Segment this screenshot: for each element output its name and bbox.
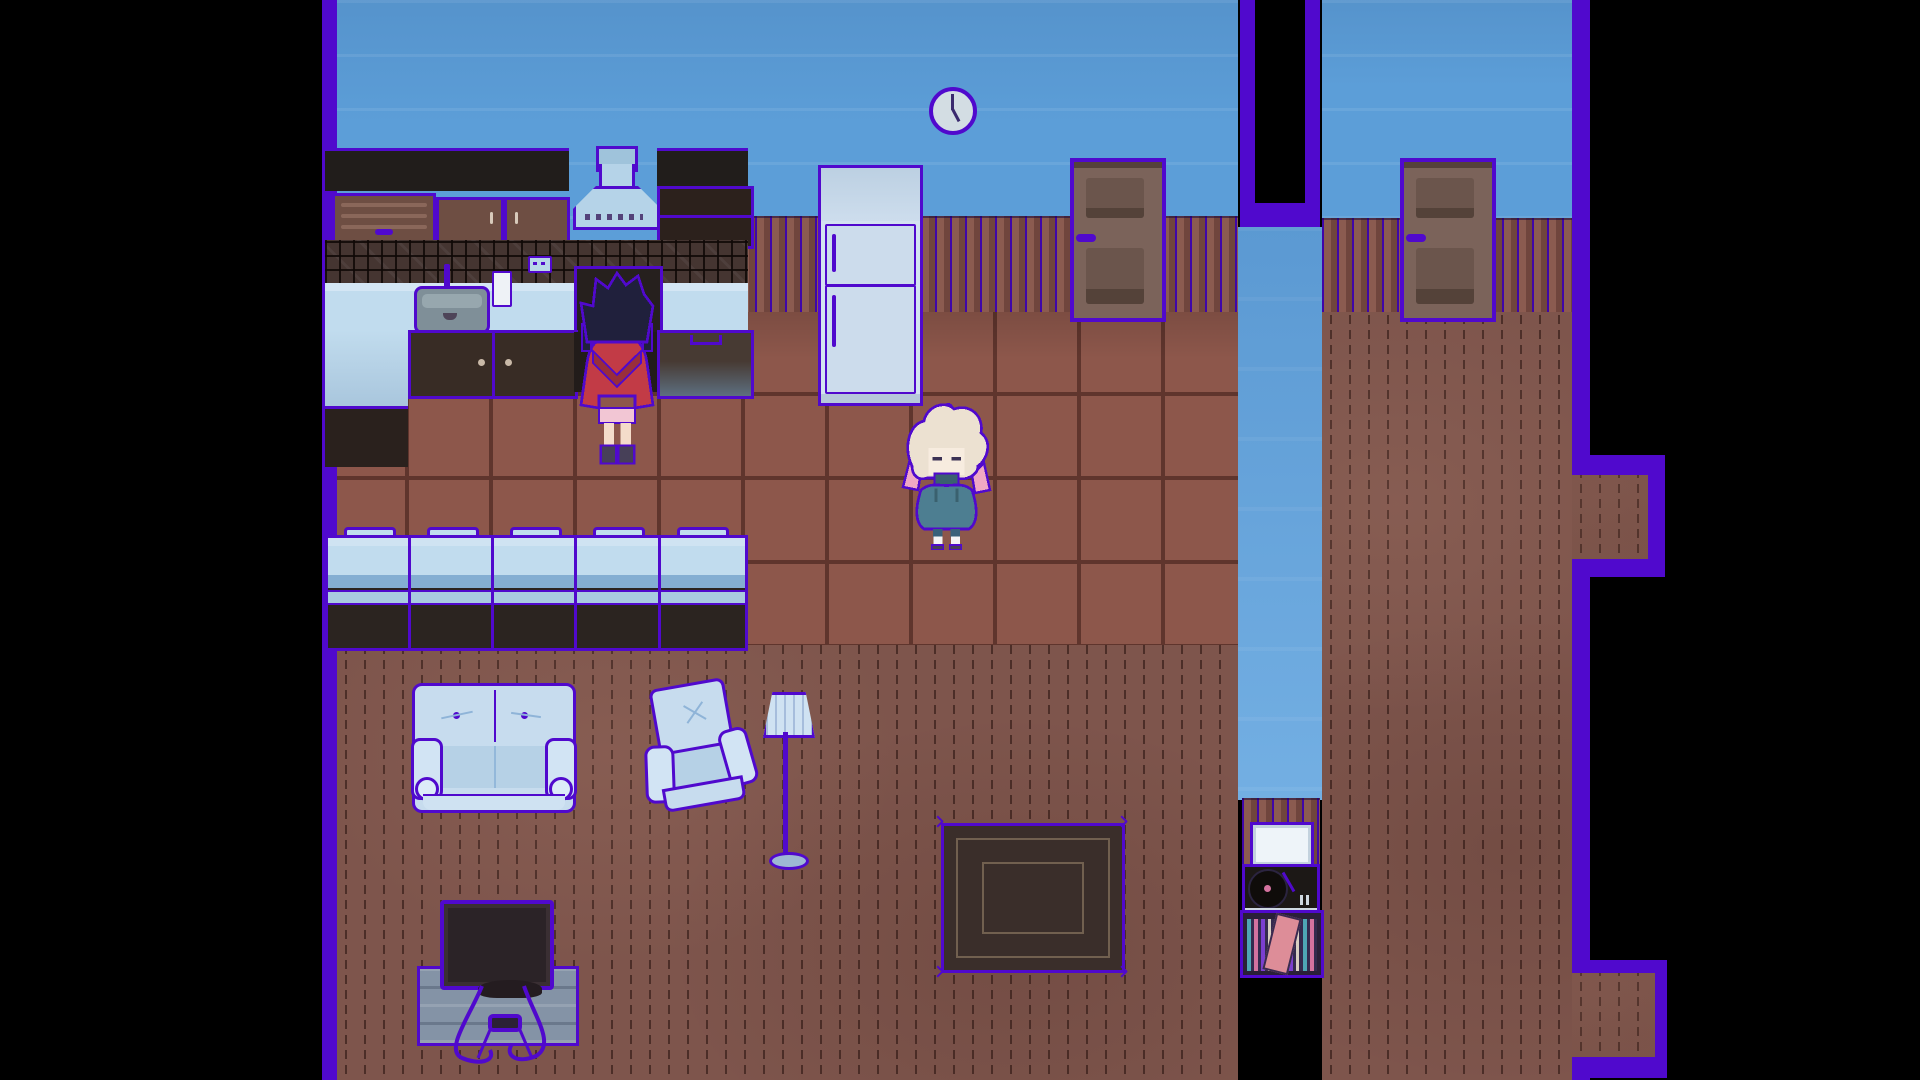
fridge-back-panel: [821, 168, 920, 221]
right-room-carpet: [1322, 312, 1572, 1080]
door-panel: [1416, 178, 1474, 218]
cabinet-top-band-left: [325, 148, 569, 191]
refrigerator[interactable]: [818, 165, 923, 406]
rug-tassel: [1120, 818, 1130, 828]
lower-cabinet-left: [408, 330, 498, 399]
wall-clock: [929, 87, 977, 135]
bar-counter-segment: [408, 535, 498, 651]
outlet-slot: [533, 262, 537, 265]
bar-counter-segment: [574, 535, 665, 651]
bar-counter-segment: [658, 535, 748, 651]
upper-cabinet-left: [436, 197, 504, 245]
clock-hour-hand: [951, 108, 960, 122]
couch-base: [423, 794, 565, 810]
door-panel: [1086, 178, 1144, 218]
fridge-freezer-door: [825, 224, 916, 286]
door-handle: [1076, 234, 1096, 242]
drawer-line: [341, 203, 427, 207]
cabinet-handle: [490, 212, 493, 224]
drawer-handle: [375, 229, 393, 235]
character-red-hooded-kid[interactable]: [578, 270, 656, 468]
area-rug: [941, 823, 1125, 973]
lamp-base: [769, 852, 809, 870]
outlet-slot: [541, 262, 545, 265]
game-console[interactable]: [420, 930, 590, 1070]
cabinet-top-band-right: [657, 148, 748, 191]
character-blonde-kid[interactable]: [900, 400, 993, 550]
rug-pattern: [982, 862, 1084, 934]
tall-cabinet-divider: [660, 215, 751, 218]
wall-alcove-upper-floor: [1572, 475, 1648, 559]
lamp-pole: [783, 732, 788, 854]
door-panel: [1416, 248, 1474, 304]
couch-arm-left: [411, 738, 443, 800]
picture-frame: [1250, 822, 1314, 868]
kitchen-counter: [325, 283, 748, 334]
loveseat-couch[interactable]: [412, 683, 576, 813]
hallway-wall: [1238, 227, 1322, 800]
lower-cabinet-right: [492, 330, 578, 399]
door-handle: [1406, 234, 1426, 242]
rug-tassel: [936, 818, 946, 828]
bar-counter-segment: [491, 535, 581, 651]
rug-tassel: [936, 968, 946, 978]
faucet: [444, 264, 450, 288]
cabinet-handle: [515, 212, 518, 224]
turntable[interactable]: [1242, 864, 1320, 916]
fridge-main-door: [825, 285, 916, 394]
drawer-line: [341, 214, 427, 218]
counter-front-left: [325, 330, 408, 409]
interior-door-right[interactable]: [1400, 158, 1496, 322]
rug-tassel: [1120, 968, 1130, 978]
dishwasher: [657, 330, 754, 399]
kitchen-drawer-unit: [332, 193, 436, 247]
counter-base-left: [325, 409, 408, 467]
couch-arm-right: [545, 738, 577, 800]
turntable-buttons: [1300, 895, 1312, 905]
door-panel: [1086, 248, 1144, 304]
kitchen-sink[interactable]: [414, 286, 490, 334]
couch-seat: [437, 746, 551, 788]
record-crate[interactable]: [1240, 910, 1324, 978]
dark-doorway[interactable]: [1255, 0, 1305, 203]
sink-drain: [443, 313, 457, 320]
game-viewport[interactable]: [0, 0, 1920, 1080]
upper-cabinet-right: [504, 197, 570, 245]
wall-alcove-lower-floor: [1572, 973, 1655, 1057]
interior-door-left[interactable]: [1070, 158, 1166, 322]
sink-rim: [422, 294, 482, 308]
cabinet-knob: [505, 359, 512, 366]
wall-outlet: [528, 256, 552, 273]
paper-cup: [492, 271, 512, 307]
cabinet-knob: [478, 359, 485, 366]
bar-counter-segment: [325, 535, 415, 651]
range-hood-vents: [585, 214, 643, 220]
dishwasher-handle: [690, 335, 722, 345]
